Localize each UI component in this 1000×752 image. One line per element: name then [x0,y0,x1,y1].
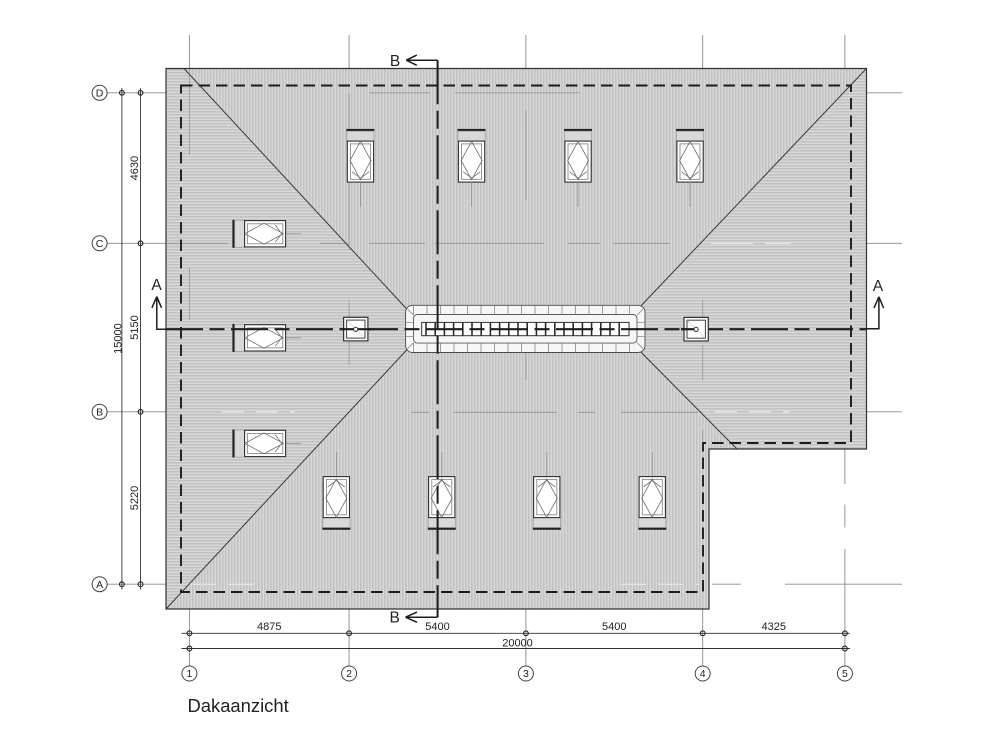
svg-text:15000: 15000 [112,323,124,354]
svg-text:3: 3 [523,668,529,680]
svg-text:20000: 20000 [502,637,533,649]
svg-text:5400: 5400 [602,621,626,633]
svg-text:1: 1 [186,668,192,680]
svg-text:B: B [390,53,400,70]
svg-text:5400: 5400 [425,621,449,633]
svg-text:Dakaanzicht: Dakaanzicht [188,695,289,716]
svg-text:5220: 5220 [129,486,141,510]
svg-text:4325: 4325 [762,621,786,633]
svg-text:4630: 4630 [129,156,141,180]
svg-text:5: 5 [842,668,848,680]
svg-text:4: 4 [700,668,706,680]
svg-text:A: A [96,579,103,591]
svg-text:D: D [96,87,104,99]
svg-text:B: B [96,406,103,418]
svg-text:B: B [390,610,400,627]
svg-text:2: 2 [346,668,352,680]
svg-text:A: A [151,277,162,294]
svg-text:C: C [96,238,104,250]
svg-text:5150: 5150 [129,315,141,339]
svg-text:4875: 4875 [257,621,281,633]
svg-text:A: A [873,278,884,295]
